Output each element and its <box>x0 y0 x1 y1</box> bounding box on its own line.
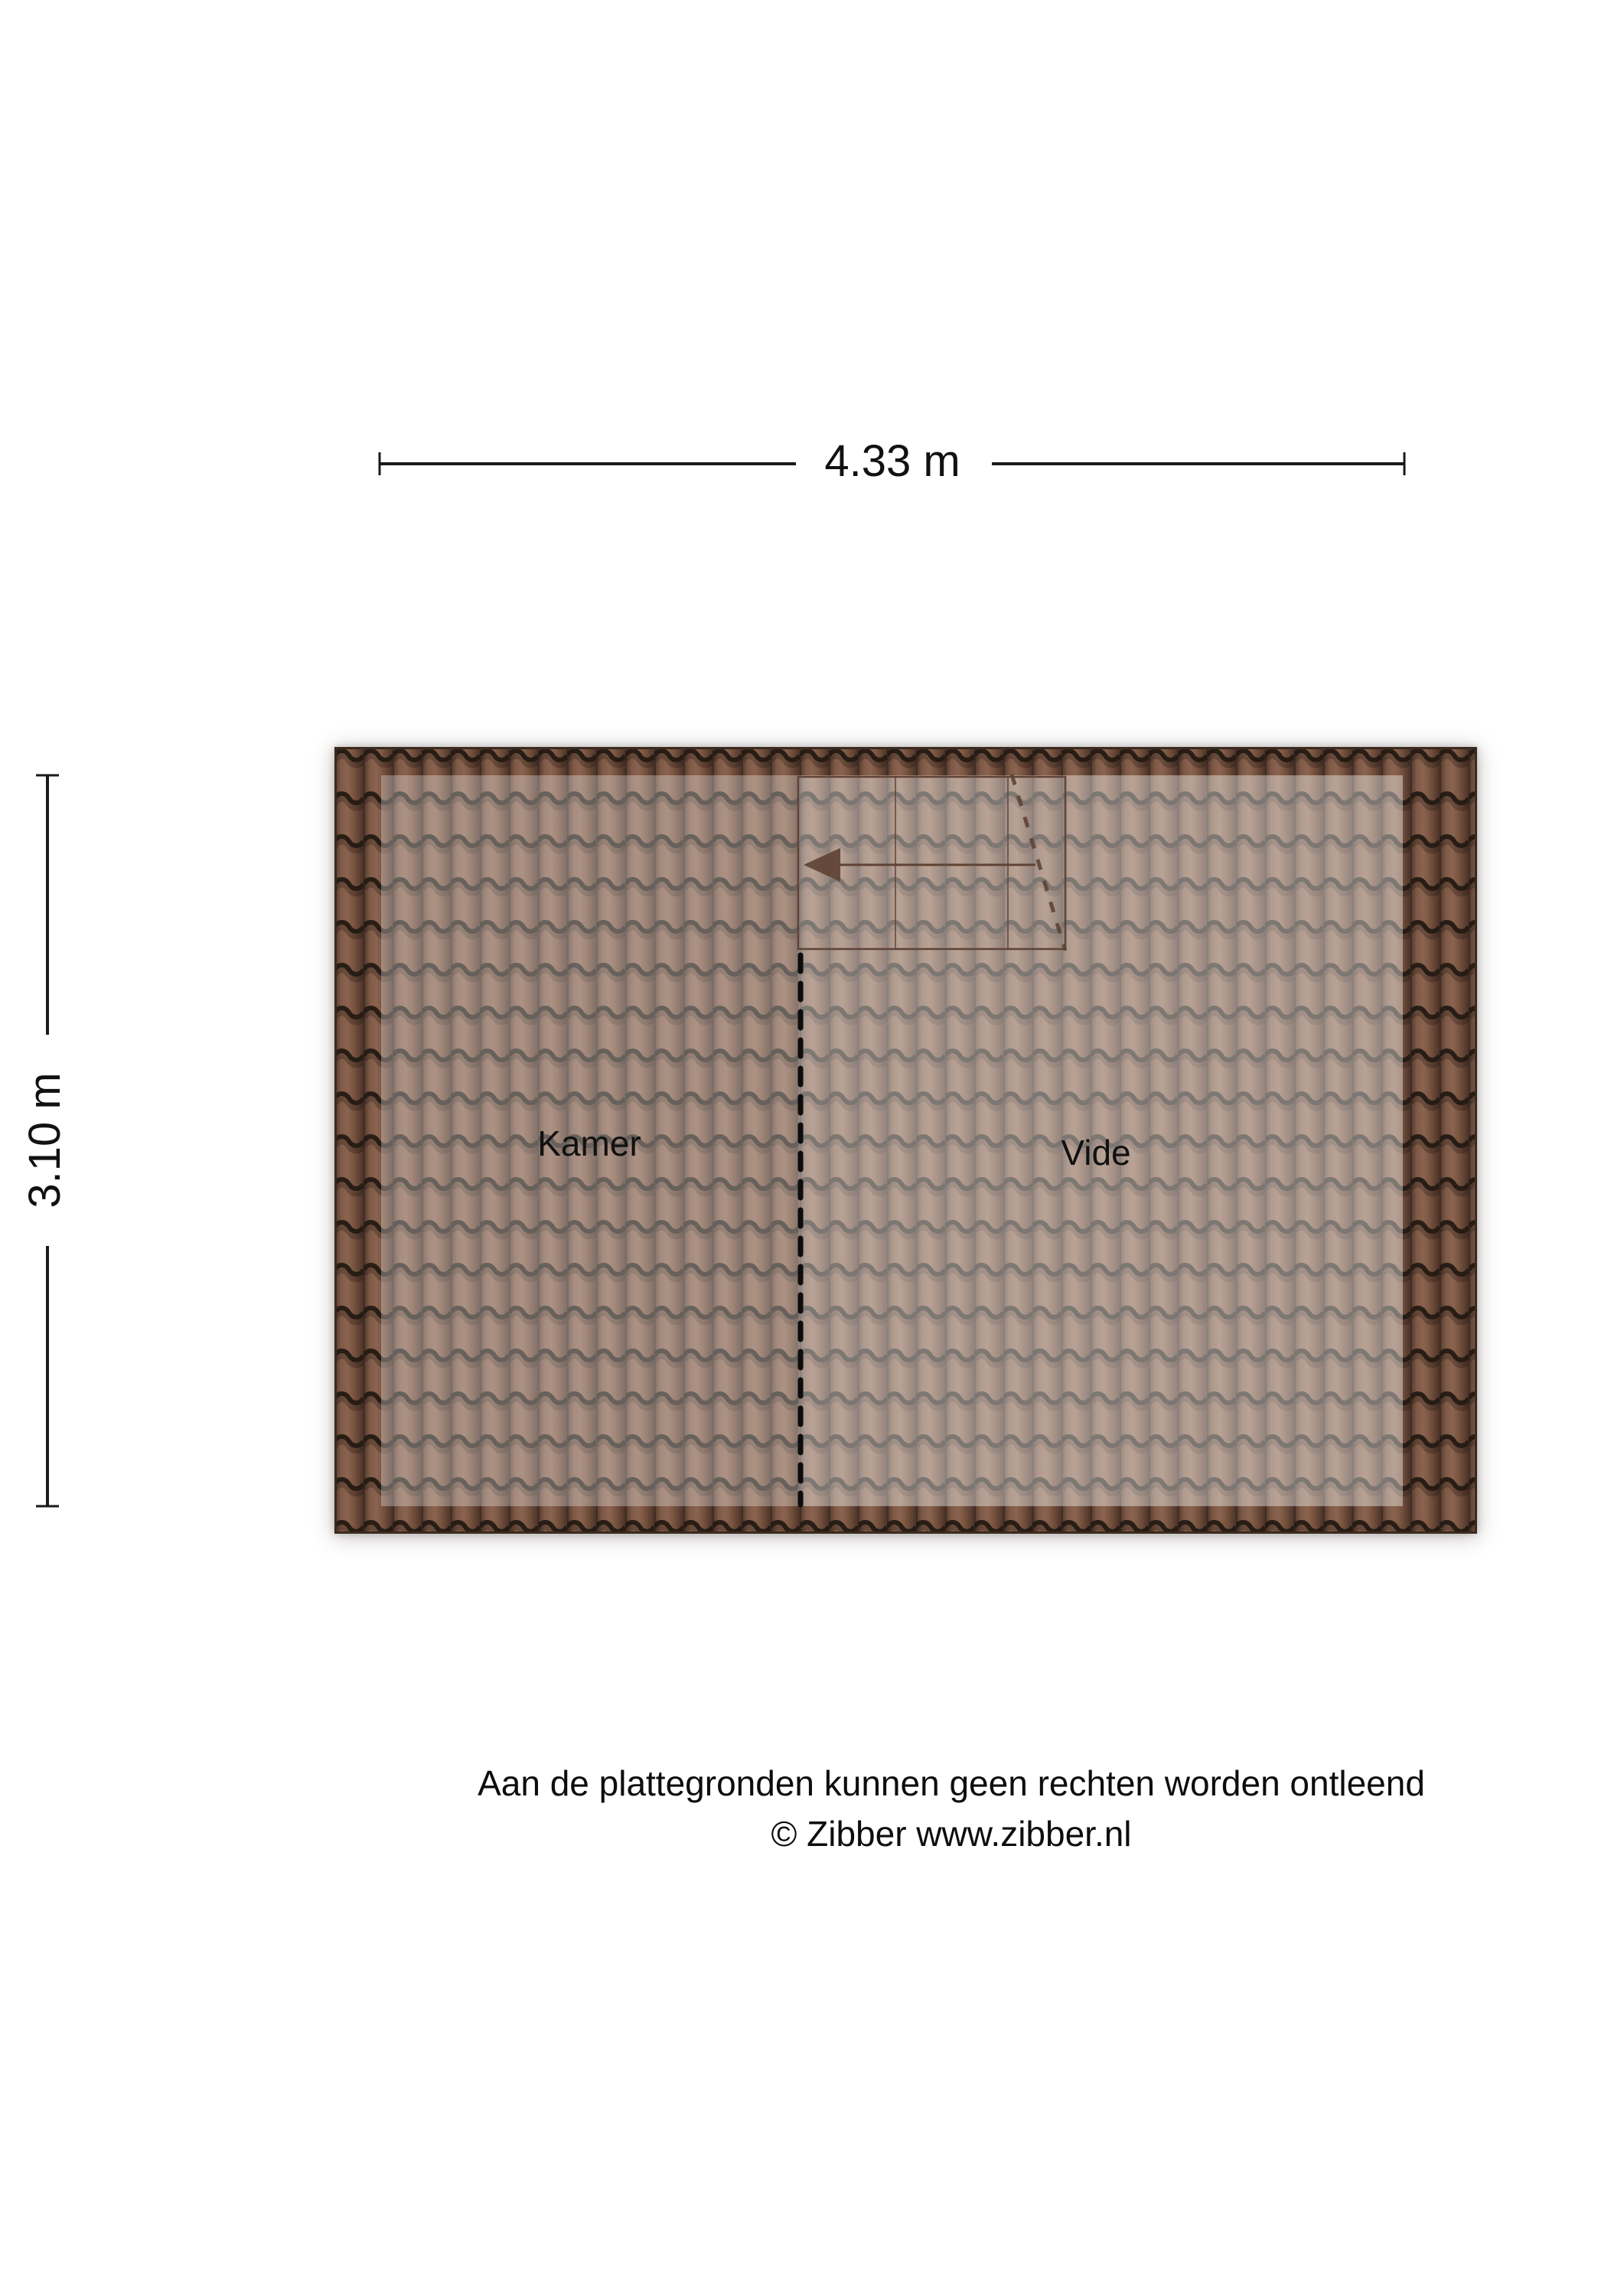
room-label-kamer: Kamer <box>537 1124 641 1163</box>
dimension-height-label: 3.10 m <box>20 1072 70 1208</box>
room-label-vide: Vide <box>1061 1133 1130 1172</box>
dimension-width-label: 4.33 m <box>824 436 960 486</box>
footer-disclaimer: Aan de plattegronden kunnen geen rechten… <box>279 1758 1624 1808</box>
footer-copyright: © Zibber www.zibber.nl <box>279 1808 1624 1859</box>
floorplan-svg: Kamer Vide 4.33 m 3.10 m <box>0 0 1624 2296</box>
floorplan-page: Kamer Vide 4.33 m 3.10 m Aan de plattegr… <box>0 0 1624 2296</box>
footer: Aan de plattegronden kunnen geen rechten… <box>279 1758 1624 1859</box>
